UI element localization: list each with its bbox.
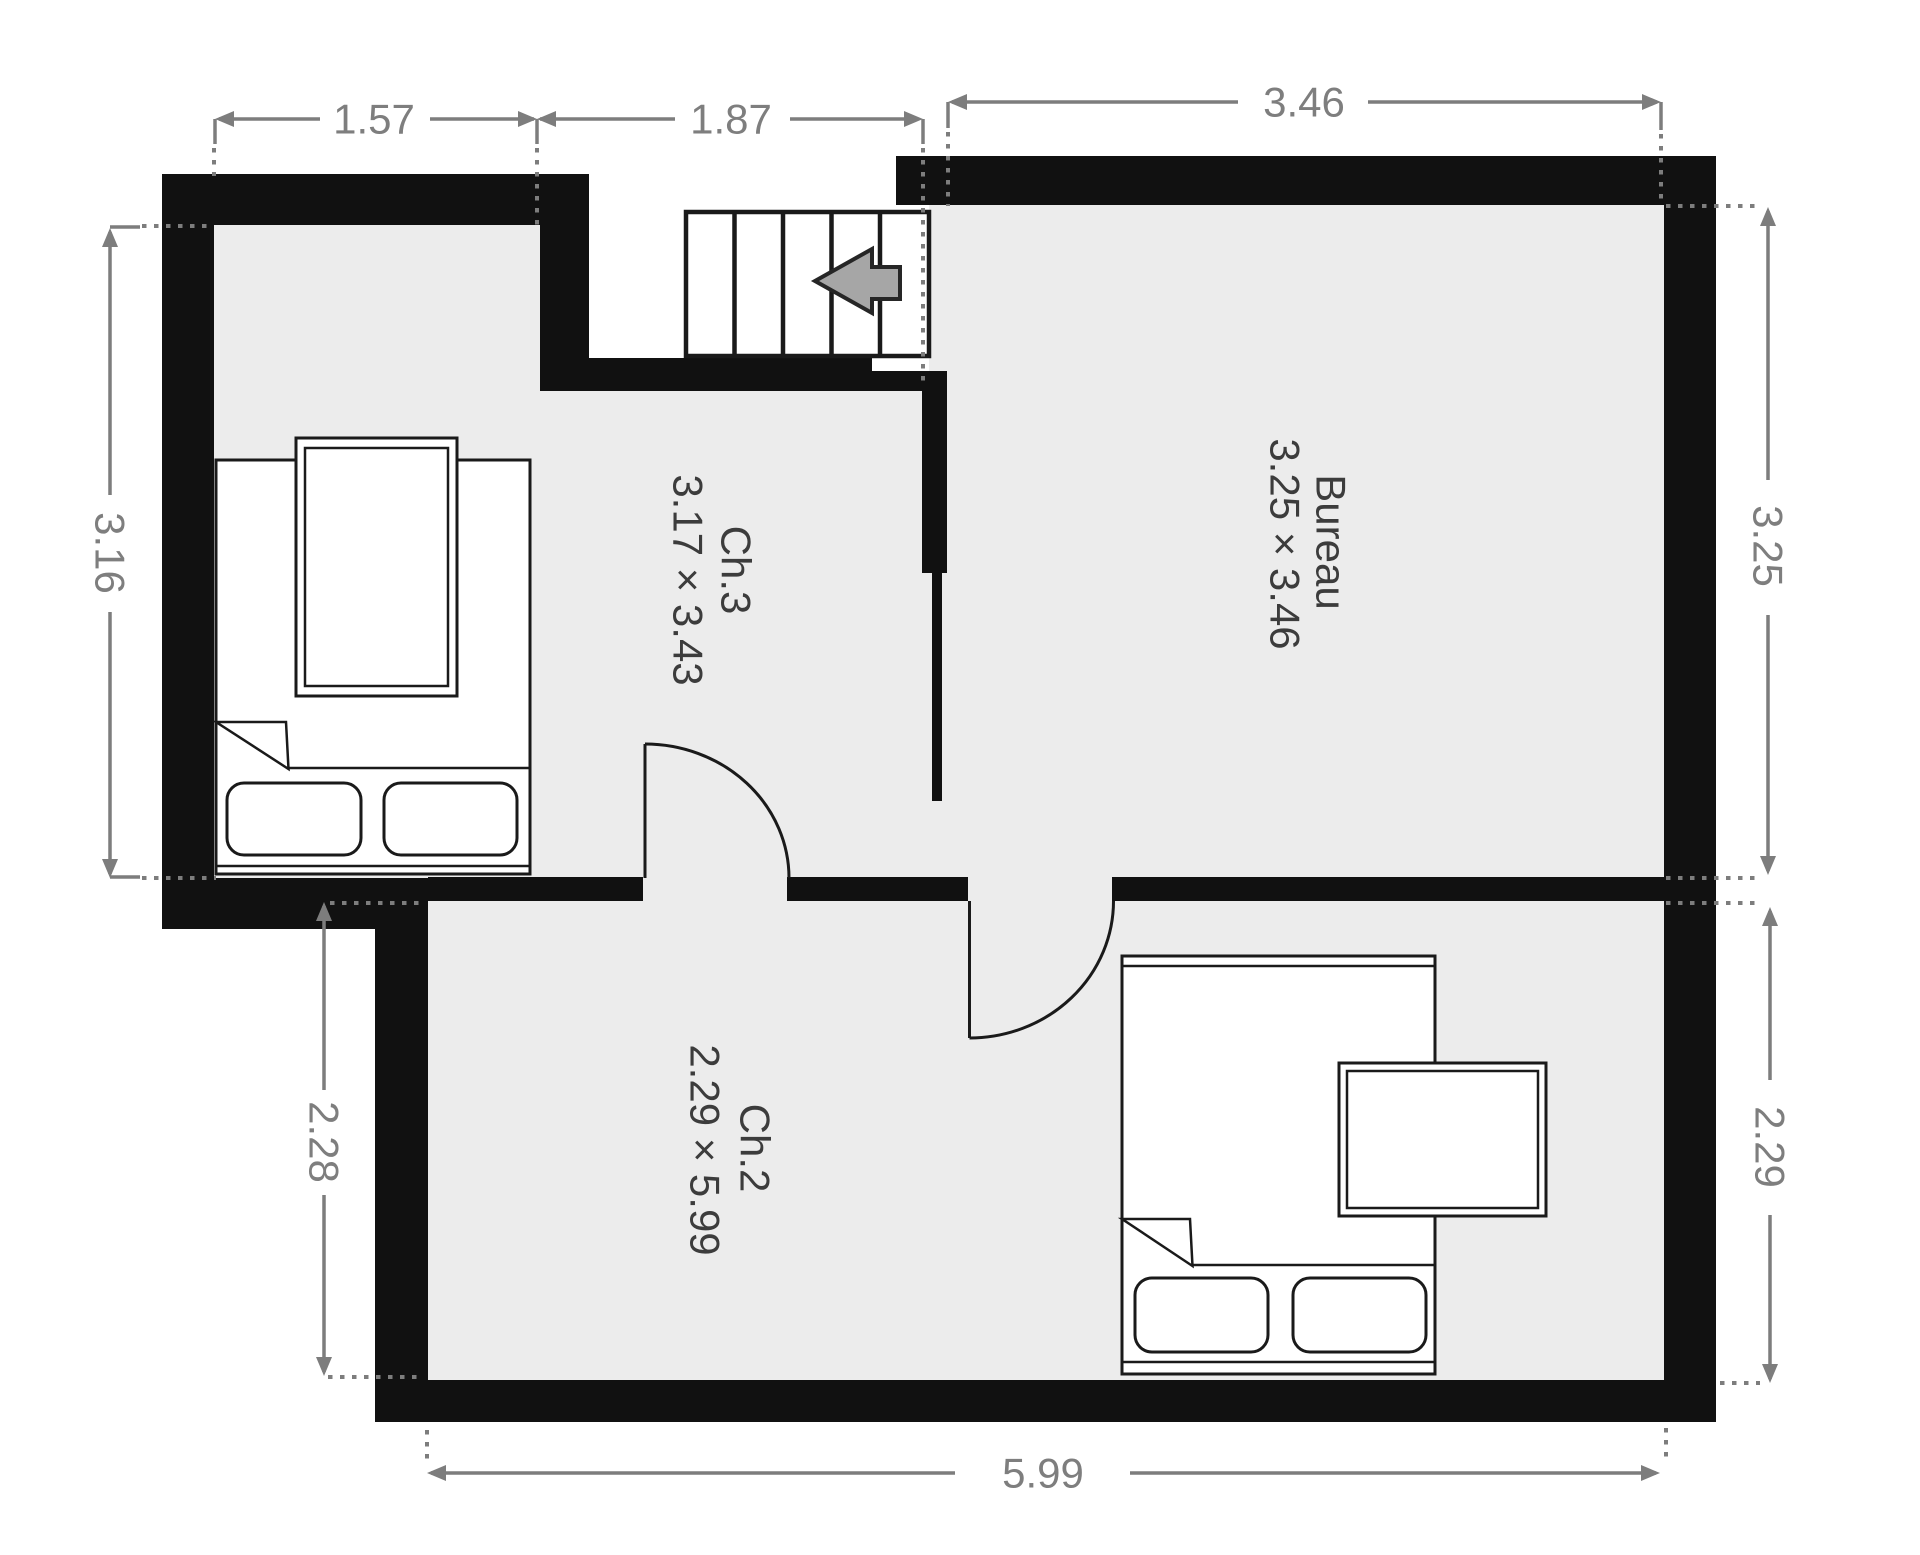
svg-text:2.28: 2.28 bbox=[300, 1101, 347, 1183]
svg-text:2.29: 2.29 bbox=[1746, 1106, 1793, 1188]
svg-text:2.29 × 5.99: 2.29 × 5.99 bbox=[681, 1044, 728, 1255]
svg-text:3.25 × 3.46: 3.25 × 3.46 bbox=[1261, 438, 1308, 649]
svg-text:Ch.3: Ch.3 bbox=[712, 526, 759, 615]
svg-text:3.25: 3.25 bbox=[1744, 505, 1791, 587]
svg-text:1.87: 1.87 bbox=[690, 96, 772, 143]
svg-text:3.46: 3.46 bbox=[1263, 79, 1345, 126]
svg-text:3.17 × 3.43: 3.17 × 3.43 bbox=[664, 474, 711, 685]
svg-text:3.16: 3.16 bbox=[86, 512, 133, 594]
svg-text:Ch.2: Ch.2 bbox=[731, 1104, 778, 1193]
svg-text:5.99: 5.99 bbox=[1002, 1450, 1084, 1497]
svg-text:1.57: 1.57 bbox=[333, 96, 415, 143]
svg-text:Bureau: Bureau bbox=[1307, 474, 1354, 609]
